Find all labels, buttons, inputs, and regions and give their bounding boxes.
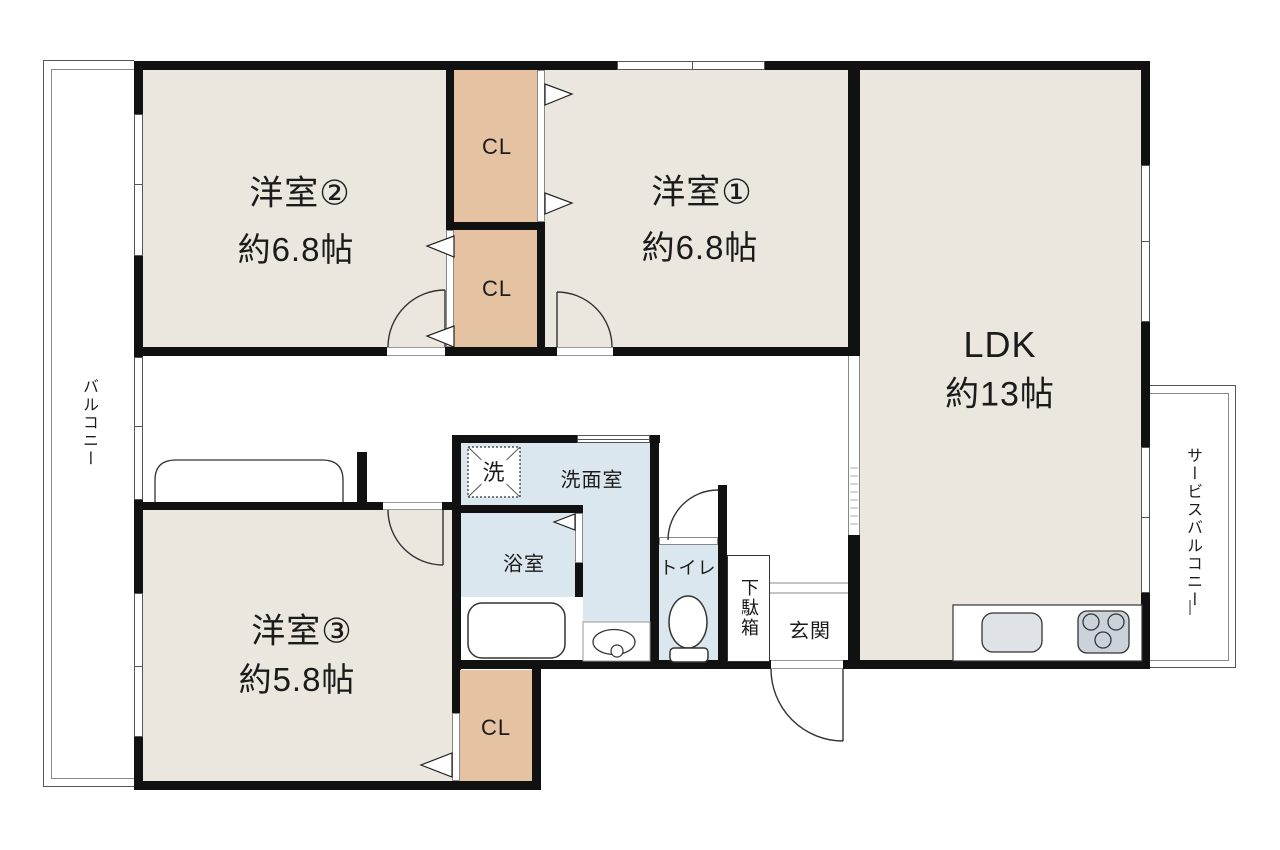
wall-washroom-top-1 (452, 435, 577, 443)
room-western2-label: 洋室② (249, 166, 350, 215)
ldk-hall-door-panel (848, 462, 860, 535)
room-western3-area: 約5.8帖 (239, 653, 356, 701)
wall-ldk-left-lower (848, 535, 860, 669)
wall-western3-top-1 (134, 502, 383, 510)
closet-bottom-label: CL (481, 715, 511, 741)
entrance-label: 玄関 (789, 615, 831, 644)
bathroom-label: 浴室 (503, 548, 545, 577)
doorway-western2 (387, 347, 445, 356)
wall-left-3 (134, 500, 143, 593)
hall-counter-outline (155, 460, 343, 502)
wall-right-1 (1141, 61, 1150, 165)
wall-right-2 (1141, 322, 1150, 447)
floor-plan: 洋室② 約6.8帖 洋室① 約6.8帖 LDK 約13帖 洋室③ 約5.8帖 C… (0, 0, 1280, 850)
doorway-western3 (383, 502, 442, 510)
room-western1-label: 洋室① (651, 165, 752, 214)
toilet-label: トイレ (660, 554, 717, 580)
wall-mid-h-1 (134, 347, 387, 356)
window-ldk-lower (1141, 447, 1150, 593)
window-ldk-upper (1141, 165, 1150, 322)
wall-washroom-right (650, 435, 659, 662)
doorway-entrance (771, 660, 843, 669)
bathroom-door (575, 513, 583, 563)
washer-label: 洗 (481, 455, 506, 487)
closet-bottom-door (452, 713, 460, 781)
ldk-hall-door (848, 356, 860, 462)
wall-top-left (134, 61, 617, 70)
wall-toilet-right (718, 485, 727, 662)
door-arc-toilet (668, 490, 718, 540)
wall-cl-bottom-left (452, 670, 460, 713)
room-western1-area: 約6.8帖 (642, 221, 759, 269)
wall-bath-washroom (452, 505, 583, 513)
wall-right-3 (1141, 593, 1150, 669)
wall-hall-stub (357, 452, 367, 502)
room-ldk-label: LDK (963, 324, 1036, 366)
room-western2-area: 約6.8帖 (238, 223, 355, 271)
closet-top-door (537, 70, 545, 222)
basin-icon (583, 622, 650, 661)
closet-mid-door (446, 230, 454, 347)
balcony-door-hall (134, 357, 143, 500)
wall-cl-right (537, 222, 545, 356)
wall-ldk-left-upper (848, 61, 860, 356)
window-western1-top (617, 61, 765, 70)
window-western2 (134, 114, 143, 256)
bathtub-area (461, 597, 575, 661)
wall-top-right (765, 61, 1150, 70)
wall-bath-left (452, 435, 461, 670)
room-western3-label: 洋室③ (251, 604, 352, 653)
wall-mid-h-3 (613, 347, 860, 356)
washroom-floor-lower (583, 505, 650, 622)
wall-left-2 (134, 256, 143, 357)
wall-cl-left (446, 70, 454, 230)
wall-left-1 (134, 61, 143, 114)
entrance-step-lines (770, 583, 848, 593)
wall-bottom-east (843, 660, 1150, 669)
room-ldk-area: 約13帖 (945, 367, 1055, 416)
closet-top-label: CL (482, 134, 512, 160)
doorway-western1 (557, 347, 613, 356)
closet-mid-label: CL (482, 276, 512, 302)
wall-cl-bottom-right (532, 660, 541, 790)
wall-cl-divider (446, 222, 545, 230)
wall-bottom-west (134, 781, 541, 790)
window-western3 (134, 593, 143, 737)
balcony-label: バルコニー (76, 378, 100, 468)
wall-bath-door-stub (575, 563, 583, 597)
service-balcony-label: サービスバルコニー (1180, 447, 1204, 609)
toilet-door (659, 537, 718, 545)
window-washroom (577, 435, 650, 443)
shoe-cabinet-label: 下駄箱 (736, 578, 762, 638)
washroom-label: 洗面室 (561, 464, 624, 493)
door-arc-entrance (771, 669, 843, 741)
